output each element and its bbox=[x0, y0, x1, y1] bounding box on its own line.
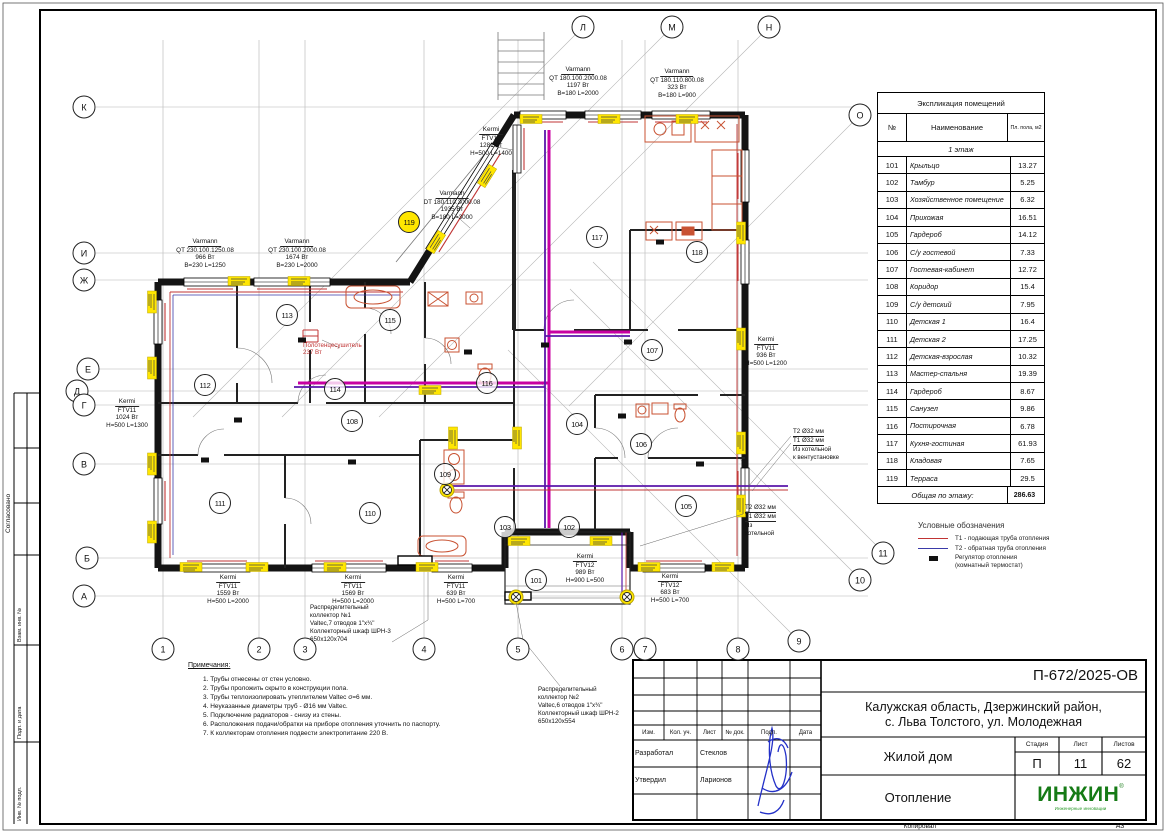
pipe-note-text: Т2 Ø32 мм bbox=[793, 428, 824, 437]
room-bubble: 114 bbox=[324, 378, 346, 400]
radiator-label-line: 639 Вт bbox=[437, 590, 475, 598]
radiator-label-line: Varmann bbox=[435, 190, 468, 199]
room-area-cell: 16.4 bbox=[1011, 314, 1044, 330]
margin-label: Инв. № подл. bbox=[17, 787, 23, 821]
project-address: Калужская область, Дзержинский район, с.… bbox=[821, 694, 1146, 735]
radiator-label-line: Kermi bbox=[216, 574, 240, 583]
pipe-note-text: Т2 Ø32 мм bbox=[745, 504, 776, 513]
radiator-label-line: FTV11 bbox=[332, 583, 374, 591]
stage-value: П bbox=[1015, 752, 1059, 774]
table-row: 111Детская 217.25 bbox=[878, 331, 1044, 348]
radiator-label-line: H=500 L=1200 bbox=[745, 360, 787, 368]
table-row: 116Постирочная6.78 bbox=[878, 418, 1044, 435]
room-name-cell: С/у детский bbox=[907, 296, 1011, 312]
axis-bubble: Ж bbox=[73, 269, 96, 292]
stamp-header-cell: Кол. уч. bbox=[664, 726, 697, 739]
radiator-label-line: 989 Вт bbox=[566, 569, 604, 577]
room-number-cell: 111 bbox=[878, 331, 907, 347]
room-name-cell: Хозяйственное помещение bbox=[907, 192, 1011, 208]
room-name-cell: Детская-взрослая bbox=[907, 348, 1011, 364]
axis-bubble: 8 bbox=[727, 638, 750, 661]
table-row: 107Гостевая-кабинет12.72 bbox=[878, 261, 1044, 278]
radiator-label: KermiFTV111559 ВтH=500 L=2000 bbox=[207, 574, 249, 605]
radiator-label-line: B=230 L=1250 bbox=[176, 262, 234, 270]
axis-bubble: 1 bbox=[152, 638, 175, 661]
room-area-cell: 19.39 bbox=[1011, 366, 1044, 382]
radiator-label-line: 966 Вт bbox=[176, 254, 234, 262]
room-number-cell: 108 bbox=[878, 279, 907, 295]
room-number-cell: 106 bbox=[878, 244, 907, 260]
sheets-label: Листов bbox=[1102, 738, 1146, 751]
radiator-label-line: 1569 Вт bbox=[332, 590, 374, 598]
room-bubble: 107 bbox=[641, 339, 663, 361]
axis-bubble: Н bbox=[758, 16, 781, 39]
legend: Условные обозначения Т1 - подающая труба… bbox=[918, 521, 1128, 571]
radiator-label-line: FTV12 bbox=[566, 562, 604, 570]
stamp-header-cell: Изм. bbox=[633, 726, 664, 739]
radiator-label-line: Kermi bbox=[444, 574, 468, 583]
room-name-cell: Кухня-гостиная bbox=[907, 435, 1011, 451]
room-bubble: 105 bbox=[675, 495, 697, 517]
room-bubble: 111 bbox=[209, 492, 231, 514]
legend-label-2: (комнатный термостат) bbox=[955, 562, 1023, 570]
room-number-cell: 118 bbox=[878, 453, 907, 469]
room-name-cell: Детская 2 bbox=[907, 331, 1011, 347]
collector-note-line: Valtec,7 отводов 1"х¾" bbox=[310, 620, 391, 628]
col-number: № bbox=[878, 114, 907, 141]
axis-bubble: 10 bbox=[849, 569, 872, 592]
table-row: 113Мастер-спальня19.39 bbox=[878, 366, 1044, 383]
radiator-label-line: DT 180.110.3000.08 bbox=[424, 199, 481, 207]
margin-label: Подп. и дата bbox=[17, 707, 23, 739]
radiator-label: KermiFTV111569 ВтH=500 L=2000 bbox=[332, 574, 374, 605]
name-developed: Стеклов bbox=[700, 742, 746, 765]
table-row: 106С/у гостевой7.33 bbox=[878, 244, 1044, 261]
margin-label: Взам. инв. № bbox=[17, 608, 23, 642]
floor-section-row: 1 этаж bbox=[878, 142, 1044, 157]
pipe-note-line: Т1 Ø32 мм bbox=[793, 437, 839, 446]
radiator-label-line: Varmann bbox=[280, 238, 313, 247]
room-name-cell: Постирочная bbox=[907, 418, 1011, 434]
radiator-label-line: QT 230.100.1250.08 bbox=[176, 247, 234, 255]
room-number-cell: 113 bbox=[878, 366, 907, 382]
sheet-number: 11 bbox=[1059, 752, 1102, 774]
room-number-cell: 104 bbox=[878, 209, 907, 225]
pipe-note-line: Т2 Ø32 мм bbox=[745, 504, 776, 513]
room-number-cell: 114 bbox=[878, 383, 907, 399]
table-row: 118Кладовая7.65 bbox=[878, 453, 1044, 470]
total-value: 286.63 bbox=[1008, 487, 1041, 503]
collector-note: Распределительныйколлектор №2Valtec,6 от… bbox=[538, 686, 619, 726]
room-area-cell: 13.27 bbox=[1011, 157, 1044, 173]
room-number-cell: 112 bbox=[878, 348, 907, 364]
room-name-cell: Прихожая bbox=[907, 209, 1011, 225]
axis-bubble: К bbox=[73, 96, 96, 119]
sheet-label: Лист bbox=[1059, 738, 1102, 751]
radiator-label-line: B=230 L=2000 bbox=[268, 262, 326, 270]
axis-bubble: 9 bbox=[788, 630, 811, 653]
room-table-total-row: Общая по этажу: 286.63 bbox=[878, 486, 1044, 503]
agreed-label: Согласовано bbox=[5, 494, 12, 533]
pipe-note-line: Из bbox=[745, 522, 776, 530]
collector-note-line: коллектор №1 bbox=[310, 612, 391, 620]
legend-title: Условные обозначения bbox=[918, 521, 1128, 530]
collector-note: Распределительныйколлектор №1Valtec,7 от… bbox=[310, 604, 391, 644]
axis-bubble: О bbox=[849, 104, 872, 127]
pipe-note-text: Из котельной bbox=[793, 446, 831, 453]
col-area: Пл. пола, м2 bbox=[1008, 114, 1044, 141]
axis-bubble: 5 bbox=[507, 638, 530, 661]
towel-rail-line: 237 Вт bbox=[303, 349, 362, 356]
radiator-label-line: FTV11 bbox=[437, 583, 475, 591]
axis-bubble: 3 bbox=[294, 638, 317, 661]
table-row: 119Терраса29.5 bbox=[878, 470, 1044, 486]
room-table-header: № Наименование Пл. пола, м2 bbox=[878, 114, 1044, 142]
table-row: 109С/у детский7.95 bbox=[878, 296, 1044, 313]
room-area-cell: 14.12 bbox=[1011, 227, 1044, 243]
room-area-cell: 10.32 bbox=[1011, 348, 1044, 364]
radiator-label-line: Kermi bbox=[658, 573, 682, 582]
legend-item: Т1 - подающая труба отопления bbox=[918, 535, 1128, 543]
pipe-note: Т2 Ø32 ммТ1 Ø32 ммИз котельнойк вентуста… bbox=[793, 428, 839, 462]
room-bubble: 118 bbox=[686, 241, 708, 263]
radiator-label-line: H=900 L=500 bbox=[566, 577, 604, 585]
collector-note-line: Коллекторный шкаф ШРН-2 bbox=[538, 710, 619, 718]
address-line-1: Калужская область, Дзержинский район, bbox=[865, 700, 1102, 715]
room-area-cell: 12.72 bbox=[1011, 261, 1044, 277]
axis-bubble: М bbox=[661, 16, 684, 39]
radiator-label-line: 1197 Вт bbox=[549, 82, 607, 90]
radiator-label-line: FTV12 bbox=[651, 582, 689, 590]
room-area-cell: 17.25 bbox=[1011, 331, 1044, 347]
pipe-note-line: котельной bbox=[745, 530, 776, 538]
axis-bubble: А bbox=[73, 585, 96, 608]
collector-note-line: Коллекторный шкаф ШРН-3 bbox=[310, 628, 391, 636]
radiator-label-line: 1559 Вт bbox=[207, 590, 249, 598]
format-label: А3 bbox=[1100, 821, 1140, 831]
stamp-header-cell: № док. bbox=[722, 726, 748, 739]
legend-label-group: Регулятор отопления(комнатный термостат) bbox=[955, 554, 1023, 569]
radiator-label-line: Varmann bbox=[188, 238, 221, 247]
radiator-label-line: Varmann bbox=[561, 66, 594, 75]
axis-bubble: И bbox=[73, 242, 96, 265]
role-approved: Утвердил bbox=[635, 769, 695, 792]
legend-item: Т2 - обратная труба отопления bbox=[918, 545, 1128, 553]
radiator-label-line: B=180 L=900 bbox=[650, 92, 704, 100]
room-table-rows: 101Крыльцо13.27102Тамбур5.25103Хозяйстве… bbox=[878, 157, 1044, 486]
stage-label: Стадия bbox=[1015, 738, 1059, 751]
room-bubble: 101 bbox=[525, 569, 547, 591]
radiator-label: VarmannQT 180.100.2000.081197 ВтB=180 L=… bbox=[549, 66, 607, 97]
radiator-label-line: Kermi bbox=[479, 126, 503, 135]
room-number-cell: 116 bbox=[878, 418, 907, 434]
radiator-label: VarmannDT 180.110.3000.081935 ВтB=180 L=… bbox=[424, 190, 481, 221]
room-bubble: 115 bbox=[379, 309, 401, 331]
radiator-label-line: H=500 L=1400 bbox=[470, 150, 512, 158]
collector-note-line: Распределительный bbox=[310, 604, 391, 612]
room-area-cell: 6.32 bbox=[1011, 192, 1044, 208]
pipe-note-text: Из bbox=[745, 522, 752, 529]
room-number-cell: 119 bbox=[878, 470, 907, 486]
room-bubble: 106 bbox=[630, 433, 652, 455]
table-row: 117Кухня-гостиная61.93 bbox=[878, 435, 1044, 452]
legend-label: Регулятор отопления bbox=[955, 554, 1023, 562]
room-number-cell: 117 bbox=[878, 435, 907, 451]
radiator-label-line: QT 230.100.2000.08 bbox=[268, 247, 326, 255]
room-area-cell: 7.95 bbox=[1011, 296, 1044, 312]
stamp-header-cell: Подп. bbox=[748, 726, 790, 739]
sheets-total: 62 bbox=[1102, 752, 1146, 774]
radiator-label-line: H=500 L=700 bbox=[651, 597, 689, 605]
room-area-cell: 9.86 bbox=[1011, 400, 1044, 416]
radiator-label-line: FTV11 bbox=[207, 583, 249, 591]
pipe-note-line: к вентустановке bbox=[793, 454, 839, 462]
room-bubble: 103 bbox=[494, 516, 516, 538]
radiator-label: KermiFTV11936 ВтH=500 L=1200 bbox=[745, 336, 787, 367]
stamp-header-cell: Лист bbox=[697, 726, 722, 739]
radiator-label-line: B=180 L=3000 bbox=[424, 214, 481, 222]
logo-text: ИНЖИН bbox=[1037, 783, 1119, 806]
axis-bubble: 11 bbox=[872, 542, 895, 565]
radiator-label-line: B=180 L=2000 bbox=[549, 90, 607, 98]
copied-label: Копировал bbox=[885, 821, 955, 831]
collector-note-line: Valtec,6 отводов 1"х¾" bbox=[538, 702, 619, 710]
radiator-label-line: Kermi bbox=[573, 553, 597, 562]
room-area-cell: 8.67 bbox=[1011, 383, 1044, 399]
pipe-note-text: котельной bbox=[745, 530, 774, 537]
radiator-label: KermiFTV121281 ВтH=500 L=1400 bbox=[470, 126, 512, 157]
radiator-label-line: QT 180.110.800.08 bbox=[650, 77, 704, 85]
total-label: Общая по этажу: bbox=[878, 487, 1008, 503]
room-name-cell: Гардероб bbox=[907, 383, 1011, 399]
room-area-cell: 5.25 bbox=[1011, 174, 1044, 190]
table-row: 102Тамбур5.25 bbox=[878, 174, 1044, 191]
room-number-cell: 107 bbox=[878, 261, 907, 277]
room-name-cell: Терраса bbox=[907, 470, 1011, 486]
room-bubble: 110 bbox=[359, 502, 381, 524]
radiator-label-line: 1674 Вт bbox=[268, 254, 326, 262]
room-table-title: Экспликация помещений bbox=[878, 93, 1044, 114]
room-number-cell: 115 bbox=[878, 400, 907, 416]
room-table: Экспликация помещений № Наименование Пл.… bbox=[877, 92, 1045, 504]
pipe-note-line: Т2 Ø32 мм bbox=[793, 428, 839, 437]
table-row: 108Коридор15.4 bbox=[878, 279, 1044, 296]
table-row: 115Санузел9.86 bbox=[878, 400, 1044, 417]
axis-bubble: Г bbox=[73, 394, 96, 417]
pipe-note-line: Т1 Ø32 мм bbox=[745, 513, 776, 522]
towel-rail-line: Полотенцесушитель bbox=[303, 342, 362, 349]
table-row: 105Гардероб14.12 bbox=[878, 227, 1044, 244]
radiator-label-line: Kermi bbox=[115, 398, 139, 407]
pipe-note-line: Из котельной bbox=[793, 446, 839, 454]
radiator-label-line: Kermi bbox=[341, 574, 365, 583]
room-number-cell: 102 bbox=[878, 174, 907, 190]
room-bubble: 117 bbox=[586, 226, 608, 248]
room-name-cell: Детская 1 bbox=[907, 314, 1011, 330]
doc-number: П-672/2025-ОВ bbox=[821, 661, 1138, 690]
room-name-cell: Мастер-спальня bbox=[907, 366, 1011, 382]
radiator-label-line: Kermi bbox=[754, 336, 778, 345]
pipe-note-text: Т1 Ø32 мм bbox=[745, 513, 776, 522]
drawing-sheet: { "sheet": { "doc_number": "П-672/2025-О… bbox=[0, 0, 1166, 833]
collector-note-line: Распределительный bbox=[538, 686, 619, 694]
pipe-note-text: Т1 Ø32 мм bbox=[793, 437, 824, 446]
radiator-label-line: H=500 L=2000 bbox=[207, 598, 249, 606]
table-row: 101Крыльцо13.27 bbox=[878, 157, 1044, 174]
axis-bubble: Б bbox=[76, 547, 99, 570]
collector-note-line: коллектор №2 bbox=[538, 694, 619, 702]
radiator-label-line: 1281 Вт bbox=[470, 142, 512, 150]
radiator-label-line: H=500 L=1300 bbox=[106, 422, 148, 430]
radiator-label: VarmannQT 230.100.1250.08966 ВтB=230 L=1… bbox=[176, 238, 234, 269]
name-approved: Ларионов bbox=[700, 769, 746, 792]
table-row: 104Прихожая16.51 bbox=[878, 209, 1044, 226]
room-bubble: 112 bbox=[194, 374, 216, 396]
logo-subtitle: Инженерные инновации bbox=[1055, 807, 1107, 812]
room-name-cell: Тамбур bbox=[907, 174, 1011, 190]
axis-bubble: Е bbox=[77, 358, 100, 381]
stamp-header-cell: Дата bbox=[790, 726, 821, 739]
room-area-cell: 61.93 bbox=[1011, 435, 1044, 451]
pipe-note-text: к вентустановке bbox=[793, 454, 839, 461]
room-area-cell: 15.4 bbox=[1011, 279, 1044, 295]
radiator-label: VarmannQT 180.110.800.08323 ВтB=180 L=90… bbox=[650, 68, 704, 99]
table-row: 114Гардероб8.67 bbox=[878, 383, 1044, 400]
radiator-label: VarmannQT 230.100.2000.081674 ВтB=230 L=… bbox=[268, 238, 326, 269]
room-bubble: 119 bbox=[398, 211, 420, 233]
towel-rail-label: Полотенцесушитель237 Вт bbox=[303, 342, 362, 356]
room-area-cell: 16.51 bbox=[1011, 209, 1044, 225]
legend-label: Т2 - обратная труба отопления bbox=[955, 545, 1046, 553]
radiator-label-line: 683 Вт bbox=[651, 589, 689, 597]
radiator-label-line: Varmann bbox=[660, 68, 693, 77]
legend-item: Регулятор отопления(комнатный термостат) bbox=[918, 554, 1128, 569]
col-name: Наименование bbox=[907, 114, 1008, 141]
thermostat-swatch bbox=[929, 556, 938, 561]
radiator-label-line: 1935 Вт bbox=[424, 206, 481, 214]
pipe-note: Т2 Ø32 ммТ1 Ø32 ммИзкотельной bbox=[745, 504, 776, 538]
room-bubble: 116 bbox=[476, 372, 498, 394]
radiator-label: KermiFTV111024 ВтH=500 L=1300 bbox=[106, 398, 148, 429]
axis-bubble: 2 bbox=[248, 638, 271, 661]
section-title: Отопление bbox=[821, 775, 1015, 820]
table-row: 103Хозяйственное помещение6.32 bbox=[878, 192, 1044, 209]
axis-bubble: 4 bbox=[413, 638, 436, 661]
logo-registered-mark: ® bbox=[1119, 784, 1123, 790]
radiator-label-line: 936 Вт bbox=[745, 352, 787, 360]
axis-bubble: 6 bbox=[611, 638, 634, 661]
axis-bubble: В bbox=[73, 453, 96, 476]
radiator-label-line: 1024 Вт bbox=[106, 414, 148, 422]
room-area-cell: 7.33 bbox=[1011, 244, 1044, 260]
legend-label-group: Т1 - подающая труба отопления bbox=[955, 535, 1049, 543]
room-number-cell: 105 bbox=[878, 227, 907, 243]
pipe-line-swatch bbox=[918, 538, 948, 539]
table-row: 110Детская 116.4 bbox=[878, 314, 1044, 331]
room-number-cell: 109 bbox=[878, 296, 907, 312]
legend-label: Т1 - подающая труба отопления bbox=[955, 535, 1049, 543]
radiator-label: KermiFTV11639 ВтH=500 L=700 bbox=[437, 574, 475, 605]
address-line-2: с. Льва Толстого, ул. Молодежная bbox=[885, 715, 1082, 730]
radiator-label-line: FTV11 bbox=[106, 407, 148, 415]
axis-bubble: 7 bbox=[634, 638, 657, 661]
axis-bubble: Л bbox=[572, 16, 595, 39]
room-name-cell: Крыльцо bbox=[907, 157, 1011, 173]
collector-note-line: 650х120х704 bbox=[310, 636, 391, 644]
room-number-cell: 110 bbox=[878, 314, 907, 330]
room-number-cell: 103 bbox=[878, 192, 907, 208]
company-logo: ИНЖИН® Инженерные инновации bbox=[1015, 777, 1146, 818]
room-bubble: 109 bbox=[434, 463, 456, 485]
collector-note-line: 650х120х554 bbox=[538, 718, 619, 726]
pipe-line-swatch bbox=[918, 548, 948, 549]
room-name-cell: С/у гостевой bbox=[907, 244, 1011, 260]
room-name-cell: Гардероб bbox=[907, 227, 1011, 243]
room-area-cell: 6.78 bbox=[1011, 418, 1044, 434]
room-bubble: 104 bbox=[566, 413, 588, 435]
radiator-label-line: QT 180.100.2000.08 bbox=[549, 75, 607, 83]
object-name: Жилой дом bbox=[821, 737, 1015, 775]
room-name-cell: Гостевая-кабинет bbox=[907, 261, 1011, 277]
radiator-label: KermiFTV12683 ВтH=500 L=700 bbox=[651, 573, 689, 604]
radiator-label-line: FTV11 bbox=[745, 345, 787, 353]
room-bubble: 102 bbox=[558, 516, 580, 538]
radiator-label-line: 323 Вт bbox=[650, 84, 704, 92]
radiator-label-line: H=500 L=700 bbox=[437, 598, 475, 606]
room-name-cell: Санузел bbox=[907, 400, 1011, 416]
room-area-cell: 7.65 bbox=[1011, 453, 1044, 469]
room-bubble: 113 bbox=[276, 304, 298, 326]
room-number-cell: 101 bbox=[878, 157, 907, 173]
room-bubble: 108 bbox=[341, 410, 363, 432]
radiator-label-line: FTV12 bbox=[470, 135, 512, 143]
radiator-label: KermiFTV12989 ВтH=900 L=500 bbox=[566, 553, 604, 584]
role-developed: Разработал bbox=[635, 742, 695, 765]
room-name-cell: Кладовая bbox=[907, 453, 1011, 469]
room-area-cell: 29.5 bbox=[1011, 470, 1044, 486]
room-name-cell: Коридор bbox=[907, 279, 1011, 295]
table-row: 112Детская-взрослая10.32 bbox=[878, 348, 1044, 365]
legend-label-group: Т2 - обратная труба отопления bbox=[955, 545, 1046, 553]
legend-items: Т1 - подающая труба отопленияТ2 - обратн… bbox=[918, 535, 1128, 569]
